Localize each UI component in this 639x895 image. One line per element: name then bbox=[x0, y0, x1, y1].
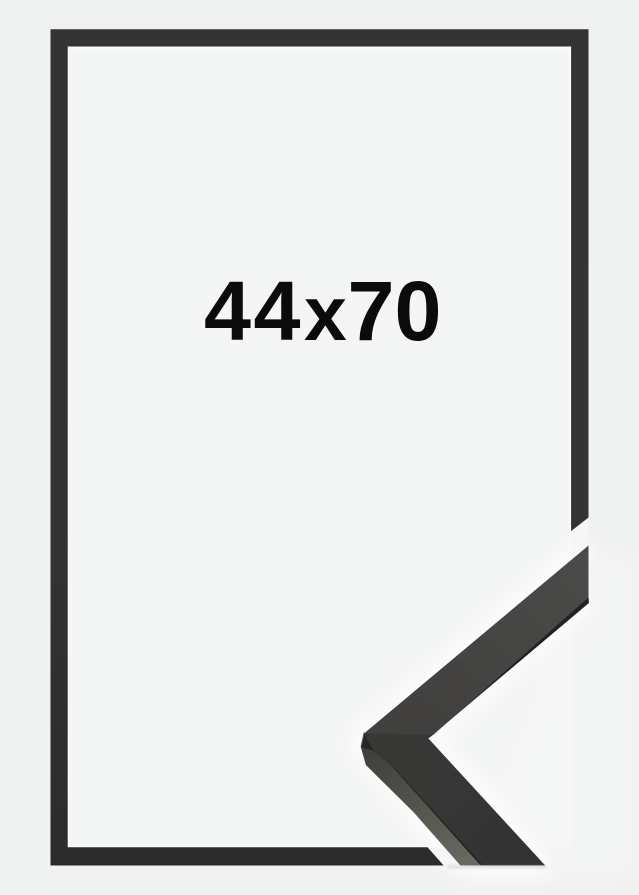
svg-text:70: 70 bbox=[348, 264, 442, 358]
svg-text:44: 44 bbox=[204, 264, 303, 358]
svg-text:x: x bbox=[304, 271, 347, 357]
